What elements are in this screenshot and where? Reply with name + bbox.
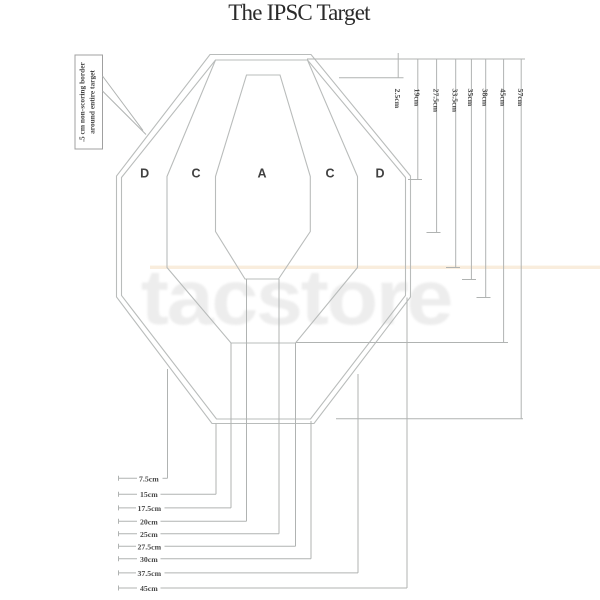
svg-text:around entire target: around entire target xyxy=(88,70,97,134)
svg-text:.5 cm non-scoring border: .5 cm non-scoring border xyxy=(78,61,87,141)
svg-text:27.5cm: 27.5cm xyxy=(431,89,440,113)
svg-text:7.5cm: 7.5cm xyxy=(139,474,159,483)
svg-text:45cm: 45cm xyxy=(498,89,507,107)
svg-text:33.5cm: 33.5cm xyxy=(451,89,460,113)
svg-text:19cm: 19cm xyxy=(413,89,422,107)
svg-text:30cm: 30cm xyxy=(140,555,158,564)
svg-text:27.5cm: 27.5cm xyxy=(138,542,162,551)
svg-text:D: D xyxy=(140,167,149,181)
svg-text:D: D xyxy=(375,167,384,181)
svg-text:35cm: 35cm xyxy=(466,89,475,107)
svg-text:15cm: 15cm xyxy=(140,490,158,499)
svg-text:2.5cm: 2.5cm xyxy=(393,89,402,109)
svg-text:C: C xyxy=(325,167,334,181)
svg-text:57cm: 57cm xyxy=(516,89,525,107)
svg-text:A: A xyxy=(257,167,266,181)
svg-text:37.5cm: 37.5cm xyxy=(138,569,162,578)
svg-text:C: C xyxy=(191,167,200,181)
svg-text:17.5cm: 17.5cm xyxy=(138,504,162,513)
svg-text:38cm: 38cm xyxy=(481,89,490,107)
svg-text:25cm: 25cm xyxy=(140,530,158,539)
svg-text:The IPSC Target: The IPSC Target xyxy=(228,0,371,25)
svg-text:45cm: 45cm xyxy=(140,584,158,593)
svg-text:20cm: 20cm xyxy=(140,517,158,526)
